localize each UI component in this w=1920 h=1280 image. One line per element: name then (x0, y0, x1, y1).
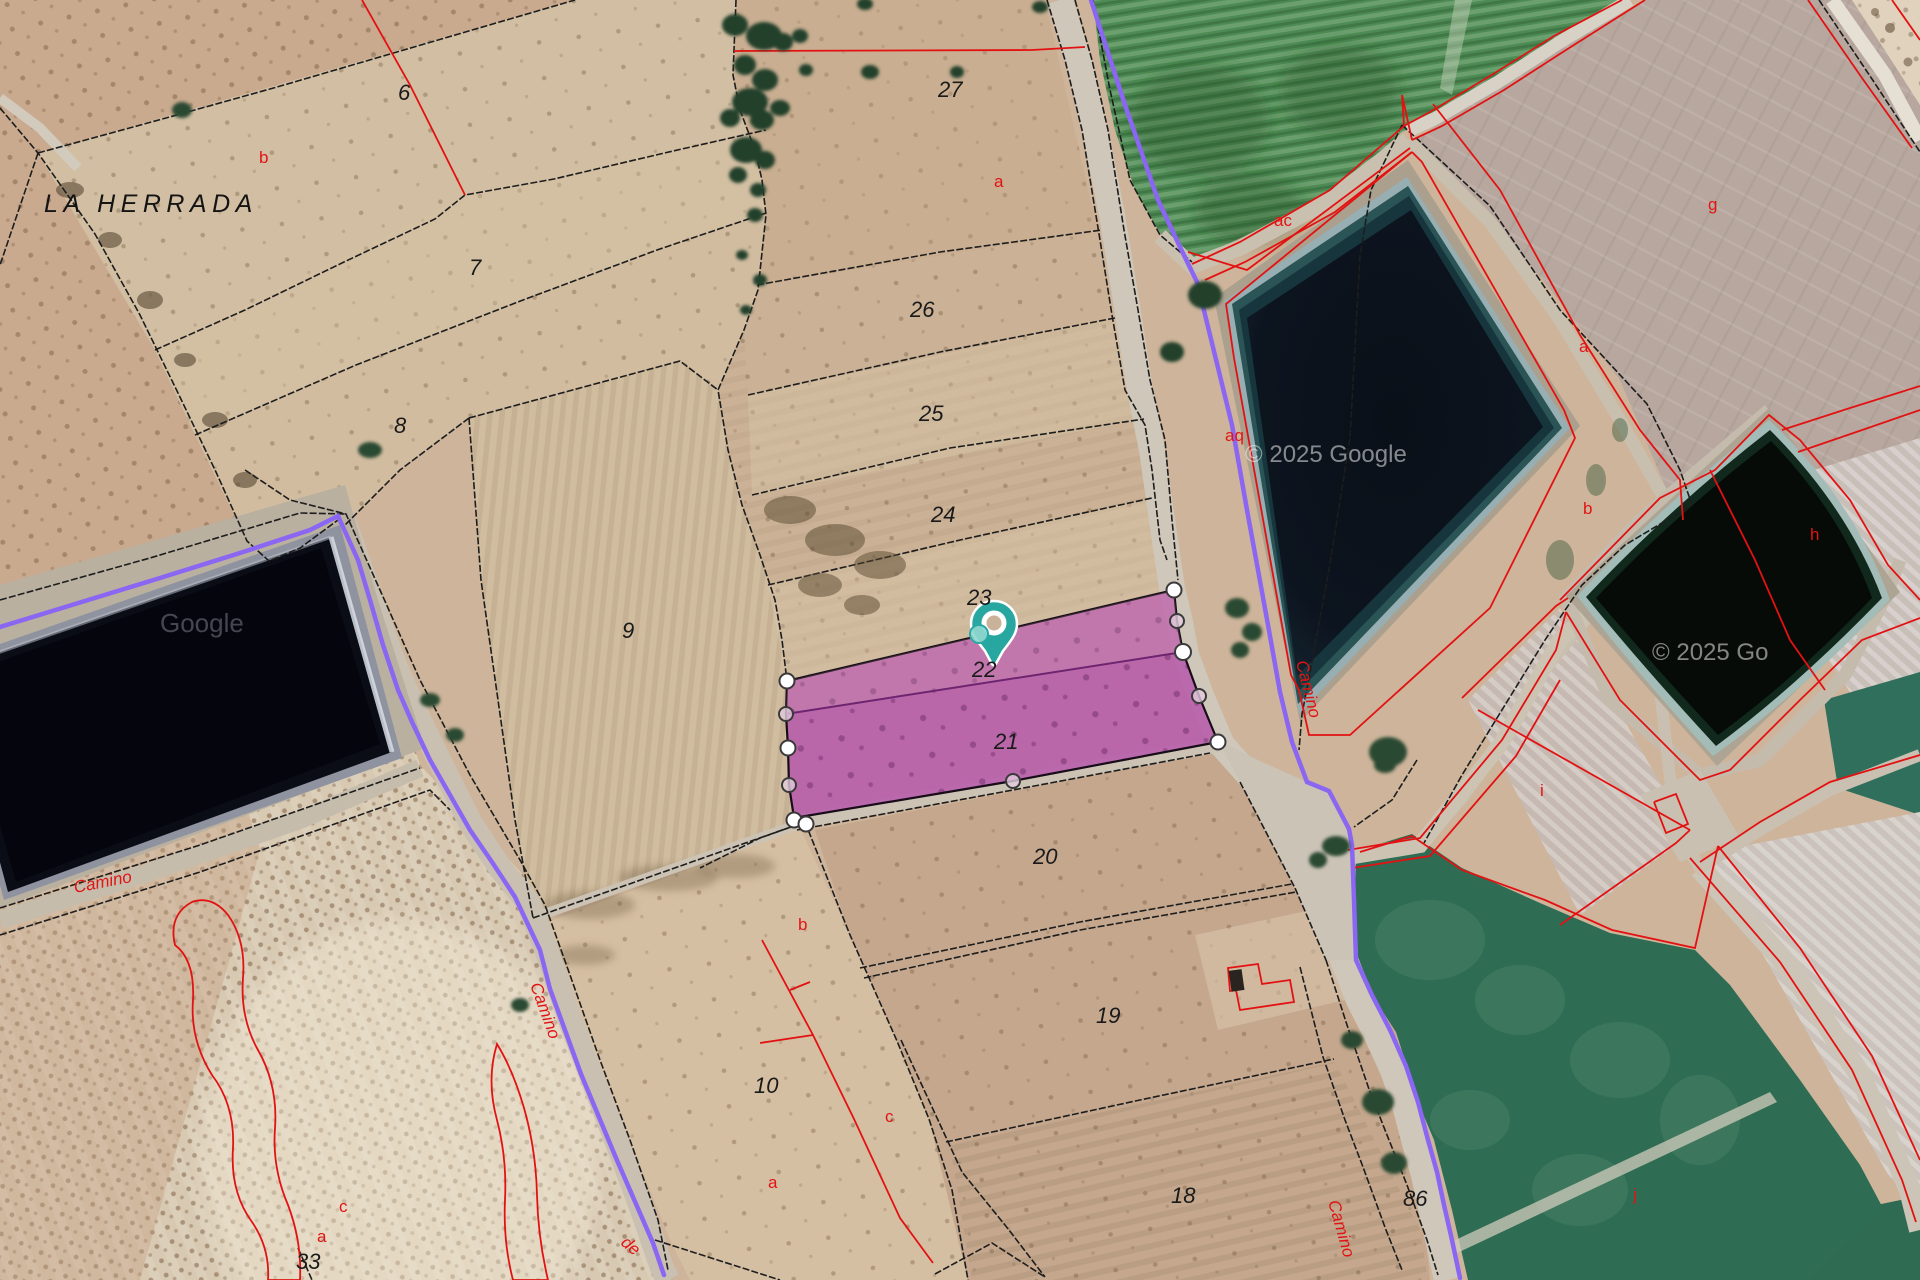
svg-text:86: 86 (1403, 1186, 1428, 1211)
svg-text:b: b (798, 915, 807, 934)
svg-text:i: i (1540, 781, 1544, 800)
svg-text:Google: Google (160, 608, 244, 638)
svg-text:19: 19 (1096, 1003, 1120, 1028)
svg-text:j: j (1632, 1185, 1637, 1204)
svg-text:LA HERRADA: LA HERRADA (44, 190, 258, 218)
svg-text:24: 24 (930, 502, 955, 527)
svg-text:10: 10 (754, 1073, 779, 1098)
svg-text:6: 6 (398, 80, 411, 105)
svg-text:b: b (259, 148, 268, 167)
svg-text:© 2025 Google: © 2025 Google (1245, 441, 1407, 468)
svg-text:23: 23 (966, 585, 992, 610)
svg-text:a: a (994, 172, 1004, 191)
svg-text:a: a (1579, 337, 1589, 356)
svg-text:ac: ac (1274, 211, 1292, 230)
svg-text:c: c (885, 1107, 894, 1126)
svg-text:© 2025 Go: © 2025 Go (1652, 639, 1768, 666)
svg-text:18: 18 (1171, 1183, 1196, 1208)
svg-text:a: a (317, 1227, 327, 1246)
svg-text:g: g (1708, 195, 1717, 214)
svg-text:21: 21 (993, 729, 1018, 754)
svg-text:25: 25 (918, 401, 944, 426)
svg-text:33: 33 (296, 1249, 321, 1274)
svg-text:aq: aq (1225, 426, 1244, 445)
svg-text:7: 7 (469, 255, 482, 280)
svg-text:a: a (768, 1173, 778, 1192)
svg-text:8: 8 (394, 413, 407, 438)
svg-text:22: 22 (971, 657, 996, 682)
svg-text:27: 27 (937, 77, 963, 102)
svg-text:b: b (1583, 499, 1592, 518)
svg-text:c: c (339, 1197, 348, 1216)
svg-text:26: 26 (909, 297, 935, 322)
svg-text:20: 20 (1032, 844, 1058, 869)
svg-text:9: 9 (622, 618, 634, 643)
svg-text:h: h (1810, 525, 1819, 544)
